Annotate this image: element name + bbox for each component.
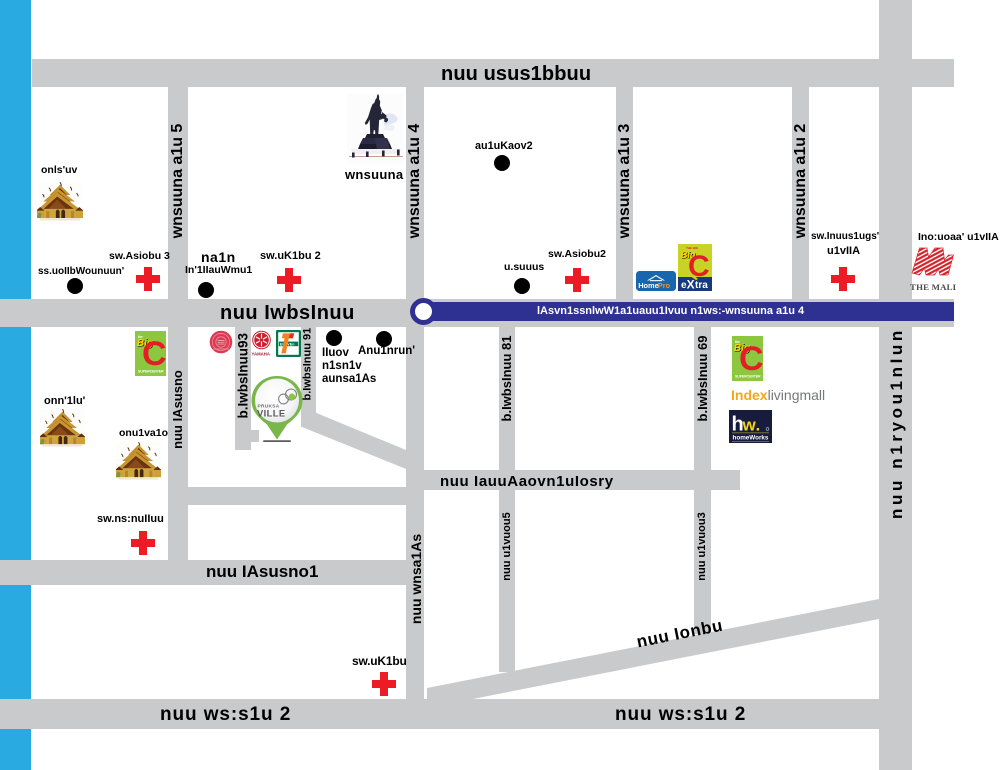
svg-text:VILLE: VILLE xyxy=(257,408,286,419)
svg-text:.: . xyxy=(756,416,761,435)
svg-text:tra: tra xyxy=(695,280,708,291)
svg-text:THE MALL: THE MALL xyxy=(910,282,956,292)
svg-text:w: w xyxy=(742,416,757,435)
svg-text:homeWorks: homeWorks xyxy=(733,435,769,442)
svg-text:SUPERCENTER: SUPERCENTER xyxy=(735,375,761,379)
svg-text:SUPERCENTER: SUPERCENTER xyxy=(138,370,164,374)
svg-text:Home: Home xyxy=(638,281,659,290)
svg-text:YAMAHA: YAMAHA xyxy=(252,352,270,357)
svg-text:X: X xyxy=(687,278,695,291)
svg-text:C: C xyxy=(142,335,166,373)
svg-text:C: C xyxy=(739,340,763,378)
svg-text:Pro: Pro xyxy=(658,281,671,290)
